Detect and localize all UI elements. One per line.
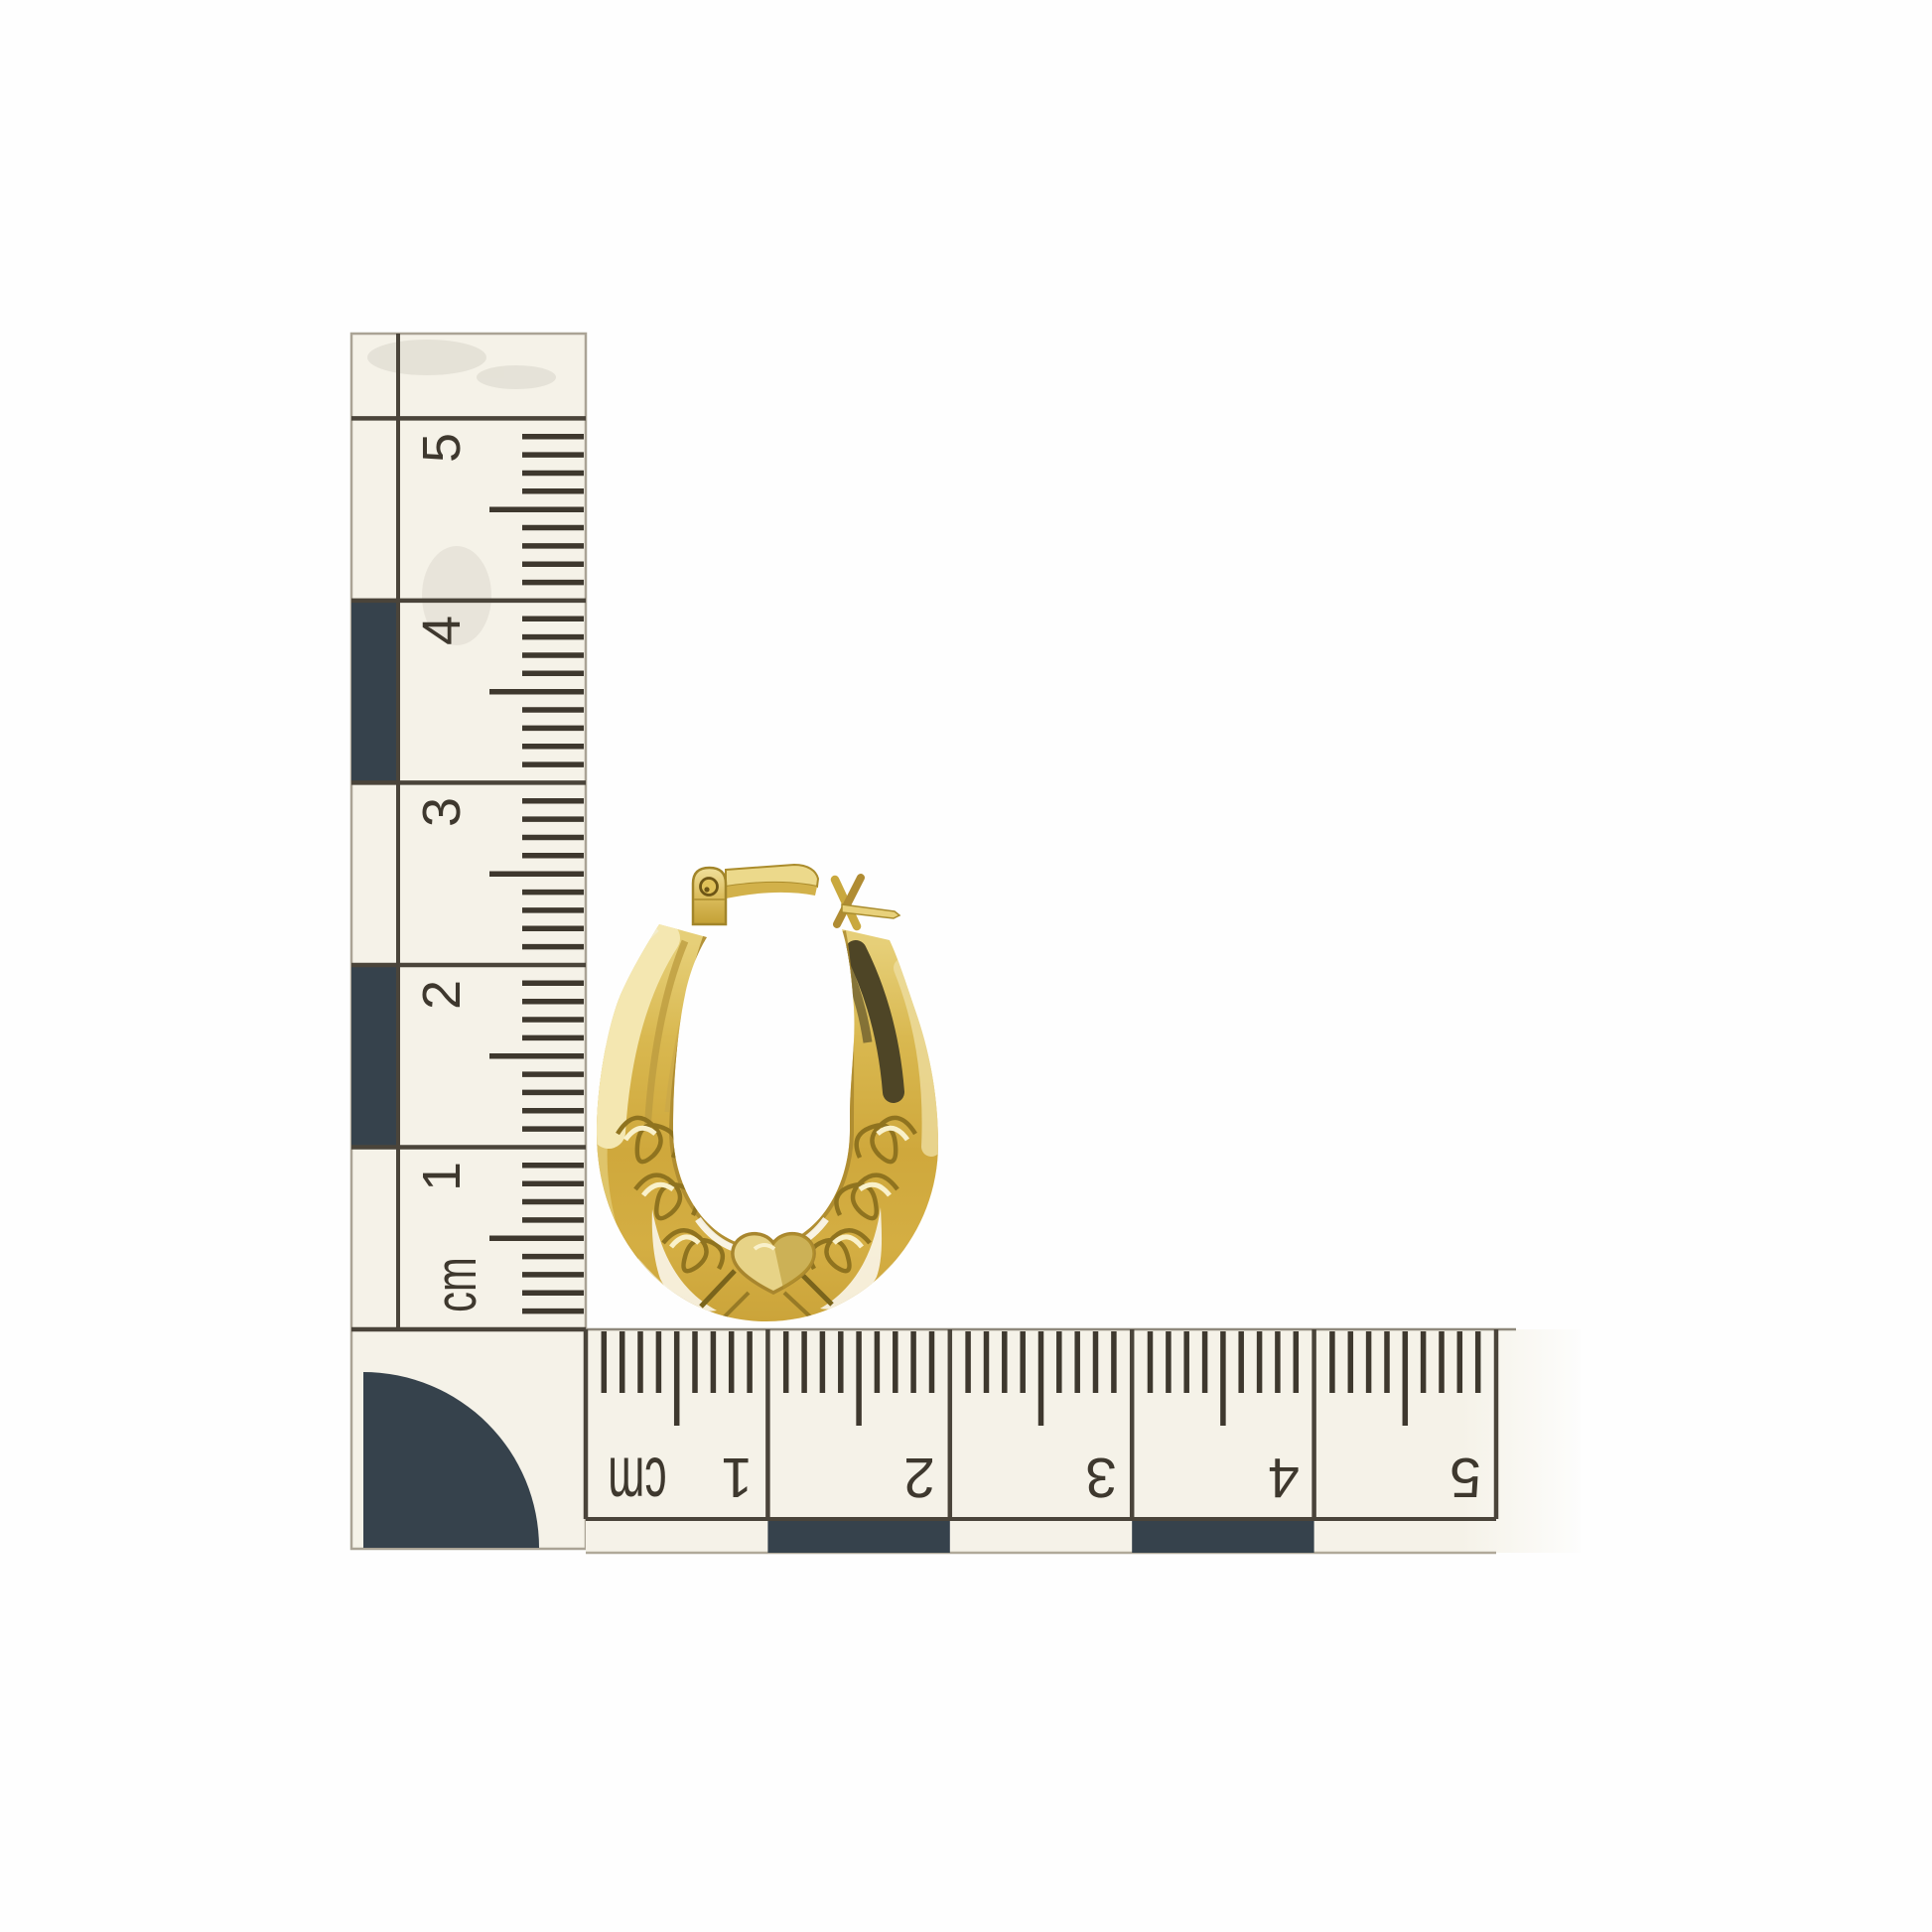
svg-text:3: 3	[412, 797, 472, 827]
svg-text:3: 3	[1085, 1446, 1117, 1509]
svg-text:5: 5	[412, 433, 472, 463]
svg-text:5: 5	[1449, 1446, 1481, 1509]
svg-text:4: 4	[412, 616, 472, 645]
svg-text:1: 1	[721, 1446, 753, 1509]
svg-text:cm: cm	[423, 1257, 487, 1312]
svg-text:2: 2	[903, 1446, 935, 1509]
svg-text:2: 2	[412, 980, 472, 1010]
svg-text:1: 1	[412, 1162, 472, 1191]
svg-text:4: 4	[1268, 1446, 1300, 1509]
svg-text:cm: cm	[608, 1443, 667, 1523]
